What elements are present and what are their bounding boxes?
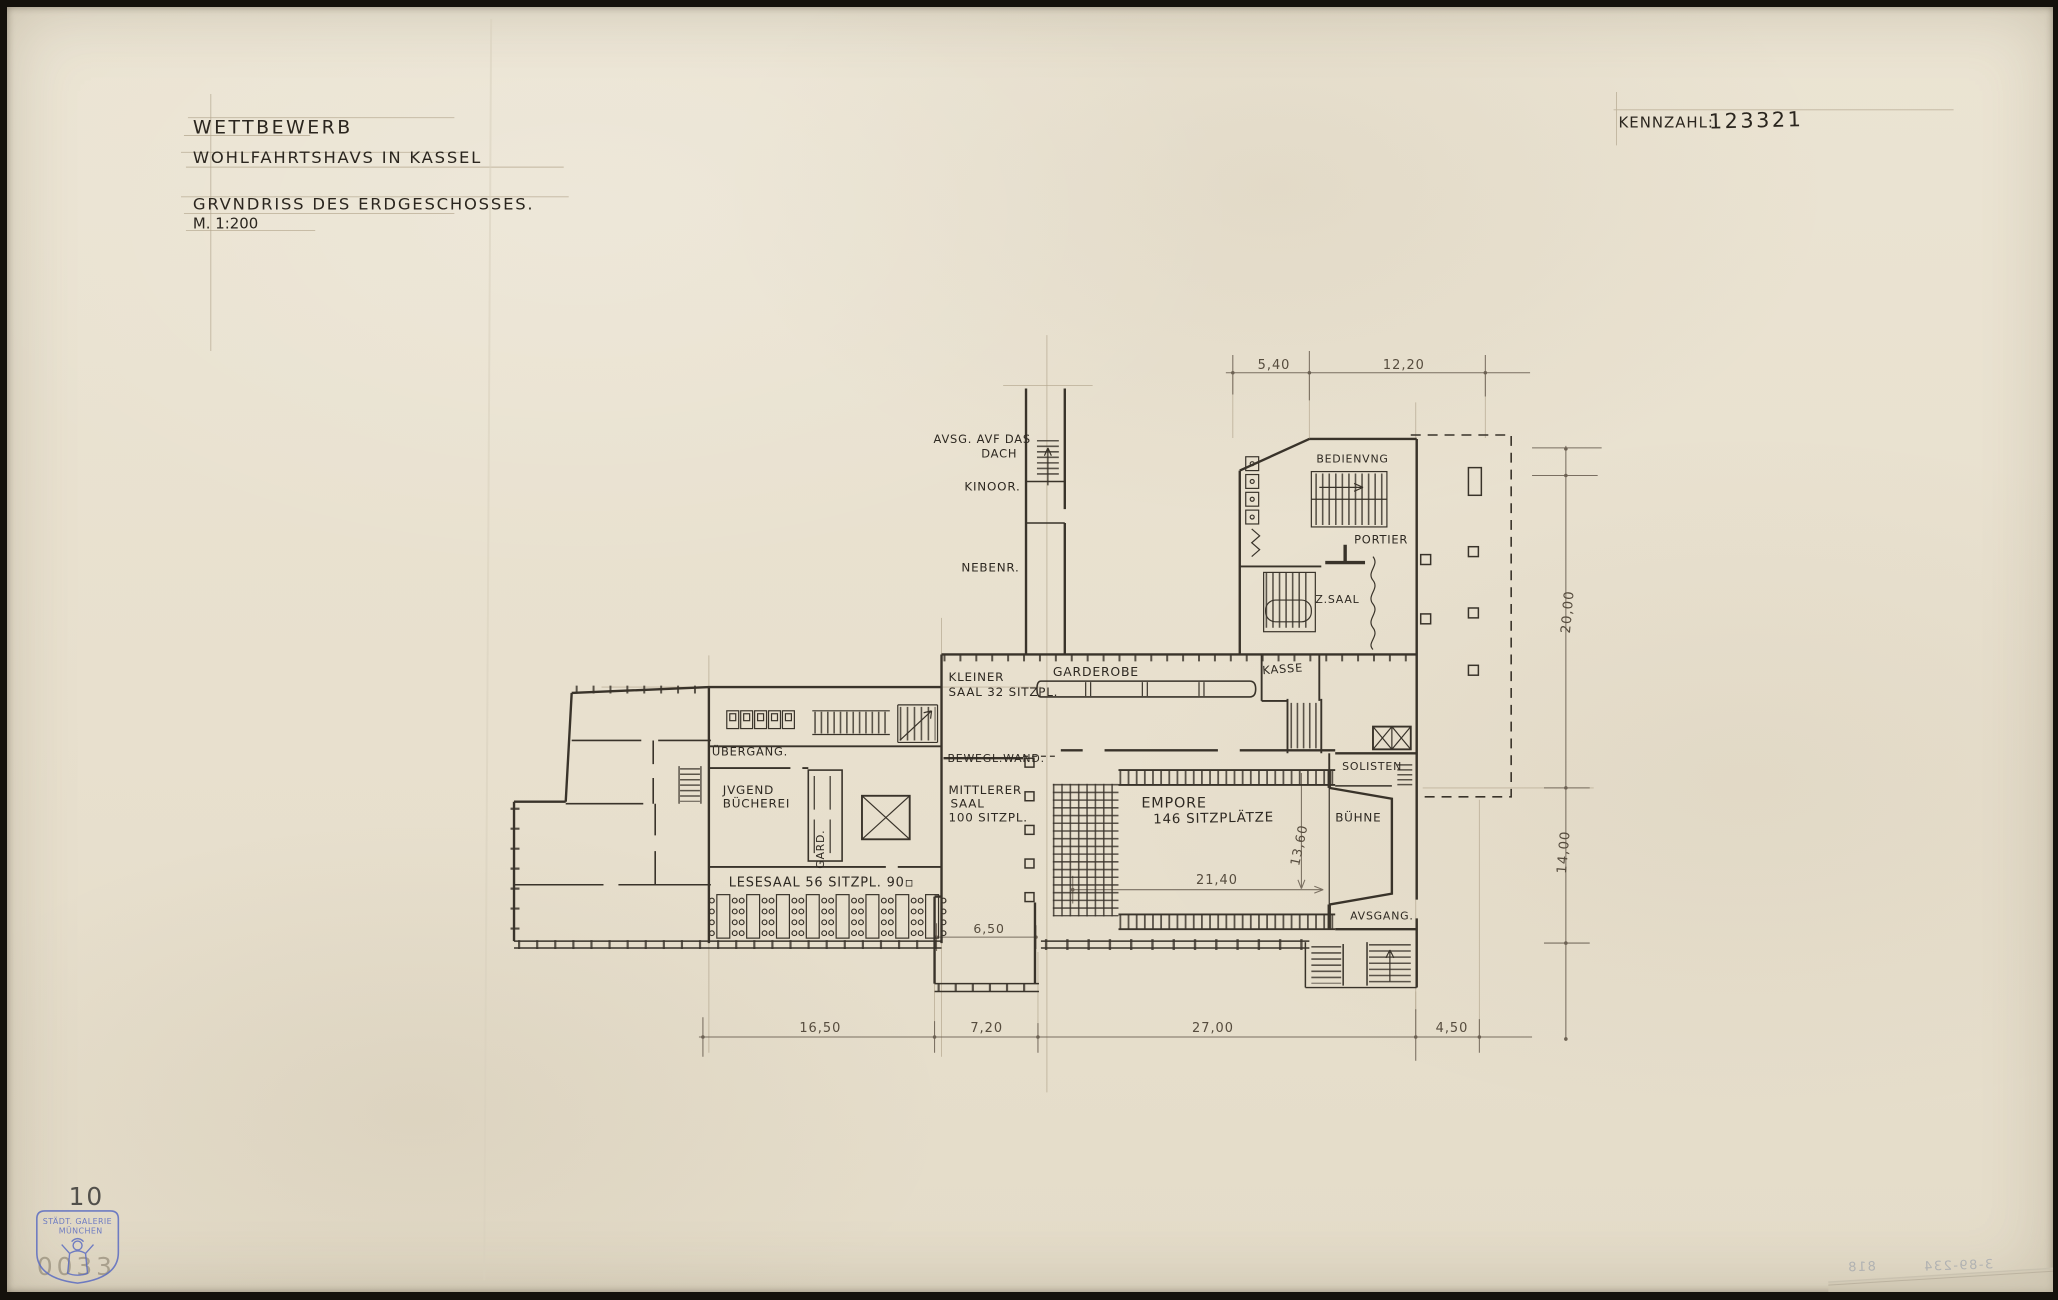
- label-bedienung: BEDIENVNG: [1316, 453, 1388, 466]
- dim-hall-depth: 13,60: [1288, 823, 1311, 867]
- label-lesesaal: LESESAAL 56 SITZPL. 90▫: [729, 876, 914, 891]
- inventory-number: 0033: [37, 1252, 116, 1281]
- dimension-lines: [699, 351, 1602, 1061]
- zigzag-wall: [1252, 529, 1260, 557]
- service-stair-arrow: [1319, 483, 1363, 491]
- title-line-1: WETTBEWERB: [193, 118, 353, 139]
- label-buehne: BÜHNE: [1335, 809, 1381, 825]
- dim-hall-width: 21,40: [1196, 873, 1238, 888]
- label-solisten: SOLISTEN: [1342, 760, 1402, 773]
- label-bewegl-wand: BEWEGL.WAND.: [947, 752, 1044, 765]
- label-ausgang: AVSGANG.: [1350, 909, 1414, 922]
- curtain-squiggle: [1371, 557, 1375, 650]
- exit-stair-arrow: [1386, 950, 1394, 982]
- label-exit-roof-2: DACH: [981, 447, 1017, 461]
- label-z-saal: Z.SAAL: [1315, 593, 1359, 606]
- dim-bottom-2: 7,20: [970, 1021, 1003, 1036]
- dim-right-lower: 14,00: [1555, 830, 1574, 874]
- kennzahl-value: 123321: [1709, 107, 1804, 133]
- label-kino: KINOOR.: [964, 479, 1020, 493]
- stamp-line-1: STÄDT. GALERIE: [43, 1216, 112, 1226]
- label-exit-roof-1: AVSG. AVF DAS: [934, 432, 1031, 446]
- label-kleiner-saal-1: KLEINER: [948, 670, 1004, 684]
- kennzahl-label: KENNZAHL:: [1619, 114, 1714, 132]
- label-kasse: KASSE: [1262, 660, 1304, 677]
- archival-marks: 10 0033 STÄDT. GALERIE MÜNCHEN 3-89-234: [37, 1182, 1994, 1283]
- stamp-line-2: MÜNCHEN: [59, 1226, 103, 1236]
- dim-bottom-4: 4,50: [1436, 1021, 1469, 1036]
- porter-desk: [1325, 545, 1365, 563]
- title-line-3: GRVNDRISS DES ERDGESCHOSSES.: [193, 195, 535, 214]
- label-jugend-2: BÜCHEREI: [723, 795, 790, 811]
- dim-right-upper: 20,00: [1559, 590, 1578, 634]
- photo-backing: WETTBEWERB WOHLFAHRTSHAVS IN KASSEL GRVN…: [0, 0, 2058, 1300]
- label-mittlerer-3: 100 SITZPL.: [948, 811, 1027, 825]
- label-mittlerer-2: SAAL: [950, 797, 984, 811]
- dim-top-left: 5,40: [1258, 358, 1291, 373]
- label-mittlerer-1: MITTLERER: [948, 783, 1022, 797]
- label-garderobe: GARDEROBE: [1053, 664, 1139, 679]
- label-uebergang: ÜBERGANG.: [712, 742, 788, 758]
- hatch-layer: [515, 440, 1415, 988]
- title-line-4: M. 1:200: [193, 214, 258, 232]
- label-kleiner-saal-2: SAAL 32 SITZPL.: [948, 685, 1058, 699]
- dimension-ticks: [701, 371, 1568, 1041]
- title-line-2: WOHLFAHRTSHAVS IN KASSEL: [193, 148, 482, 167]
- passage-stairs-outline: [812, 705, 937, 743]
- dim-bottom-3: 27,00: [1192, 1021, 1234, 1036]
- labels-layer: WETTBEWERB WOHLFAHRTSHAVS IN KASSEL GRVN…: [193, 107, 1804, 1036]
- label-jugend-1: JVGEND: [722, 783, 774, 797]
- dim-top-right: 12,20: [1383, 358, 1425, 373]
- pencil-note-showthrough: 3-89-234 818: [1847, 1255, 1994, 1277]
- label-empore-1: EMPORE: [1141, 796, 1206, 812]
- drawing-sheet: WETTBEWERB WOHLFAHRTSHAVS IN KASSEL GRVN…: [7, 7, 2053, 1292]
- pencil-note-2: 818: [1847, 1259, 1877, 1275]
- page-number: 10: [69, 1182, 105, 1211]
- kino-stair-arrow: [1044, 448, 1051, 486]
- dim-annex: 6,50: [973, 921, 1005, 936]
- label-portier: PORTIER: [1354, 533, 1408, 547]
- terrace-dashed-outline: [1411, 435, 1511, 797]
- floor-plan-drawing: WETTBEWERB WOHLFAHRTSHAVS IN KASSEL GRVN…: [7, 7, 2053, 1292]
- label-gard: GARD.: [814, 830, 827, 869]
- label-nebenraum: NEBENR.: [961, 560, 1019, 574]
- dim-bottom-1: 16,50: [799, 1021, 841, 1036]
